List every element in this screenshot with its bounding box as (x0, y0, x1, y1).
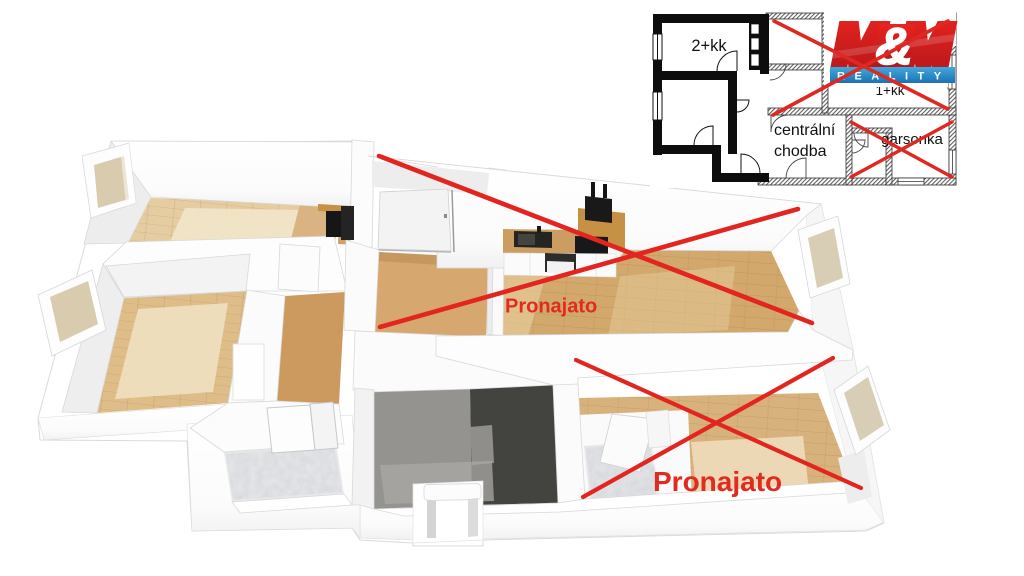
svg-text:2+kk: 2+kk (691, 37, 727, 55)
svg-text:Pronajato: Pronajato (505, 296, 597, 318)
svg-text:centrální: centrální (774, 122, 836, 139)
svg-text:Pronajato: Pronajato (653, 466, 782, 497)
svg-text:chodba: chodba (774, 143, 827, 160)
